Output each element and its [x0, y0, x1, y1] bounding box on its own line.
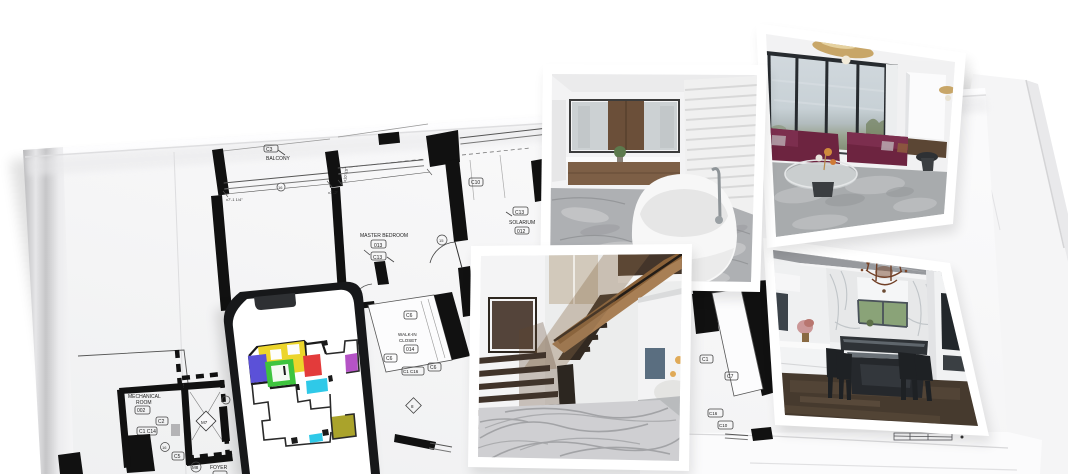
svg-text:C7: C7 [727, 374, 734, 380]
svg-text:16: 16 [278, 185, 283, 190]
svg-text:C2: C2 [158, 419, 165, 425]
svg-text:CLOSET: CLOSET [399, 338, 417, 343]
svg-text:002: 002 [137, 408, 146, 414]
svg-text:M8: M8 [192, 465, 199, 470]
svg-text:C1: C1 [702, 357, 709, 363]
svg-text:012: 012 [517, 229, 526, 235]
svg-text:C3: C3 [266, 147, 273, 153]
svg-text:x7'-1 1/4": x7'-1 1/4" [226, 197, 243, 202]
svg-text:C16: C16 [709, 411, 718, 416]
svg-text:C13: C13 [373, 255, 382, 261]
svg-text:014: 014 [406, 347, 415, 353]
svg-text:FOYER: FOYER [210, 465, 228, 471]
svg-text:ROOM: ROOM [136, 400, 152, 406]
svg-text:BALCONY: BALCONY [266, 156, 291, 162]
svg-text:WALK-IN: WALK-IN [398, 332, 417, 337]
svg-text:C5: C5 [174, 454, 181, 460]
svg-text:C6: C6 [386, 356, 393, 362]
svg-text:15: 15 [439, 238, 444, 243]
svg-text:C13: C13 [515, 210, 524, 216]
svg-text:M7: M7 [201, 420, 208, 425]
svg-text:MASTER BEDROOM: MASTER BEDROOM [360, 233, 408, 239]
svg-text:SOLARIUM: SOLARIUM [509, 220, 535, 226]
svg-text:x7'-2": x7'-2" [328, 190, 339, 195]
svg-text:013: 013 [374, 243, 383, 249]
svg-text:C10: C10 [719, 423, 728, 428]
svg-text:C1 C14: C1 C14 [139, 429, 156, 435]
svg-text:C10: C10 [471, 180, 480, 186]
svg-text:C6: C6 [406, 313, 413, 319]
svg-text:16: 16 [162, 445, 167, 450]
svg-text:C1 C16: C1 C16 [403, 369, 419, 374]
svg-text:C6: C6 [430, 365, 437, 371]
